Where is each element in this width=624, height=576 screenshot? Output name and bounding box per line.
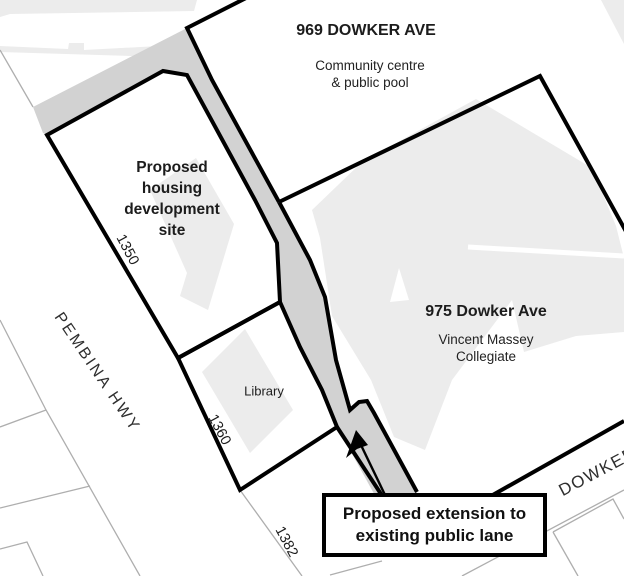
parcel-line-corner (0, 542, 43, 576)
parcel-line-southeast-2 (553, 532, 578, 576)
lot-1382-line (240, 490, 302, 576)
housing-site-label: Proposed housing development site (124, 157, 220, 241)
housing-site-label-line2: housing (124, 178, 220, 199)
parcel-975-subtitle: Vincent Massey Collegiate (438, 331, 533, 365)
parcel-line-branch-2 (0, 486, 90, 508)
parcel-975-subtitle-line1: Vincent Massey (438, 331, 533, 348)
parcel-975-title: 975 Dowker Ave (425, 304, 547, 320)
parcel-969-subtitle-line2: & public pool (315, 74, 425, 91)
callout-line1: Proposed extension to (343, 503, 526, 525)
parcel-line-southeast-1 (553, 499, 624, 532)
parcel-969-title: 969 DOWKER AVE (296, 23, 436, 39)
building-footprints (0, 0, 624, 453)
parcel-969-subtitle-line1: Community centre (315, 57, 425, 74)
parcel-line-branch-1 (0, 410, 46, 427)
housing-site-label-line4: site (124, 220, 220, 241)
housing-site-label-line1: Proposed (124, 157, 220, 178)
map-canvas (0, 0, 624, 576)
building-footprint-top-right-sliver (601, 0, 624, 44)
parcel-975-subtitle-line2: Collegiate (438, 348, 533, 365)
library-label: Library (244, 385, 284, 398)
building-footprint-top-left-strip (0, 0, 197, 17)
site-plan-map: { "map": { "labels": { "parcel_969": { "… (0, 0, 624, 576)
lane-extension-callout: Proposed extension to existing public la… (322, 493, 547, 557)
parcel-line-south (330, 561, 382, 575)
pembina-hwy-edge-line (0, 50, 33, 107)
parcel-line-west (0, 320, 140, 576)
callout-line2: existing public lane (356, 525, 514, 547)
parcel-969-subtitle: Community centre & public pool (315, 57, 425, 91)
building-footprint-school (312, 99, 624, 450)
housing-site-label-line3: development (124, 199, 220, 220)
